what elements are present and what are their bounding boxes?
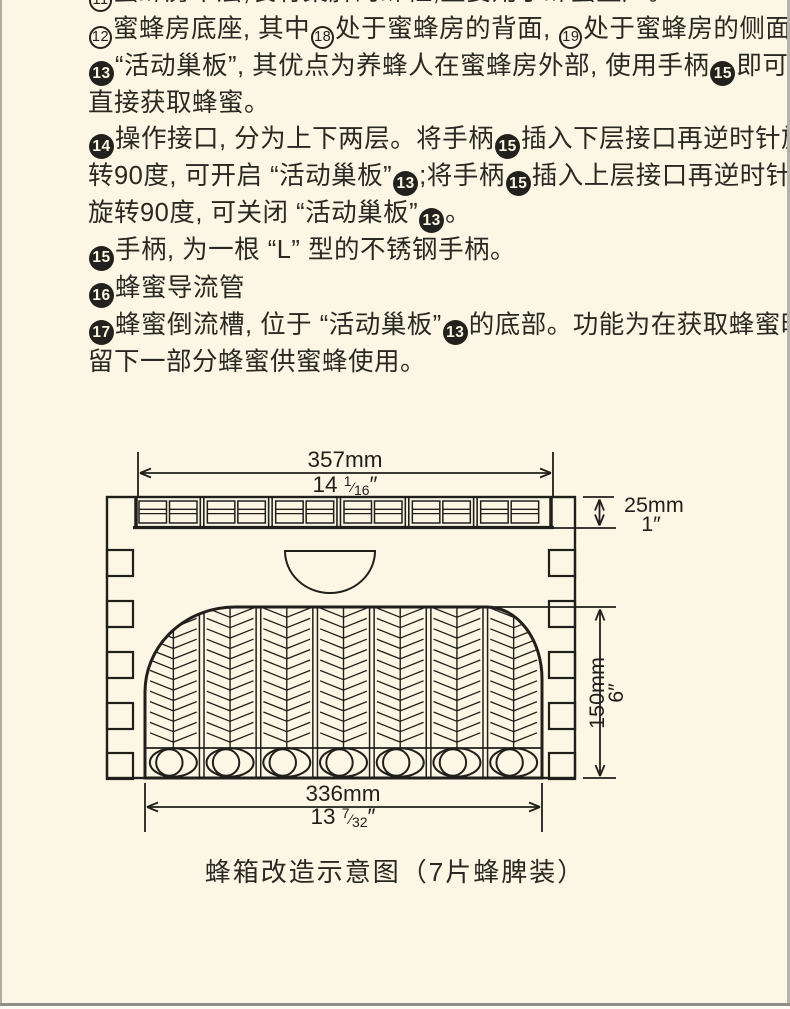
filled-circled-number: 13 <box>393 171 418 196</box>
manual-page: 11蜜蜂房中层,装有巢脾的蜂框,主要用于蜂蜜生产。12蜜蜂房底座, 其中18处于… <box>0 0 790 1009</box>
handle-recess <box>285 551 375 593</box>
body-line: 留下一部分蜂蜜供蜜蜂使用。 <box>88 345 738 381</box>
outlined-circled-number: 12 <box>89 26 112 49</box>
comb-frames-pattern <box>145 604 542 778</box>
filled-circled-number: 13 <box>419 208 444 233</box>
filled-circled-number: 15 <box>710 61 735 86</box>
filled-circled-number: 13 <box>89 61 114 86</box>
body-line: 直接获取蜂蜜。 <box>88 86 738 122</box>
filled-circled-number: 16 <box>89 283 114 308</box>
finger-joint-notches <box>107 550 575 779</box>
body-text: 11蜜蜂房中层,装有巢脾的蜂框,主要用于蜂蜜生产。12蜜蜂房底座, 其中18处于… <box>88 0 738 381</box>
svg-text:13 7⁄32″: 13 7⁄32″ <box>311 804 376 830</box>
page-edge-left <box>0 0 2 1009</box>
svg-text:14 1⁄16″: 14 1⁄16″ <box>313 472 378 498</box>
dimension-336mm: 336mm13 7⁄32″ <box>145 781 542 832</box>
svg-text:1″: 1″ <box>641 512 661 536</box>
body-line: 14操作接口, 分为上下两层。将手柄15插入下层接口再逆时针旋 <box>88 122 738 159</box>
body-line: 11蜜蜂房中层,装有巢脾的蜂框,主要用于蜂蜜生产。 <box>88 0 738 12</box>
dimension-25mm: 25mm1″ <box>554 493 684 536</box>
body-line: 13“活动巢板”, 其优点为养蜂人在蜜蜂房外部, 使用手柄15即可 <box>88 49 738 86</box>
outlined-circled-number: 19 <box>559 26 582 49</box>
dimension-357mm: 357mm14 1⁄16″ <box>138 447 553 498</box>
filled-circled-number: 13 <box>443 320 468 345</box>
body-line: 16蜂蜜导流管 <box>88 271 738 308</box>
body-line: 12蜜蜂房底座, 其中18处于蜜蜂房的背面, 19处于蜜蜂房的侧面。 <box>88 12 738 49</box>
body-line: 17蜂蜜倒流槽, 位于 “活动巢板”13的底部。功能为在获取蜂蜜时, <box>88 308 738 345</box>
top-vent-strip <box>133 497 554 528</box>
filled-circled-number: 15 <box>506 171 531 196</box>
beehive-diagram: 357mm14 1⁄16″25mm1″150mm6″336mm13 7⁄32″ <box>0 440 790 845</box>
diagram-caption: 蜂箱改造示意图（7片蜂脾装） <box>0 852 790 892</box>
body-line: 15手柄, 为一根 “L” 型的不锈钢手柄。 <box>88 233 738 270</box>
filled-circled-number: 15 <box>495 134 520 159</box>
filled-circled-number: 17 <box>89 320 114 345</box>
svg-text:6″: 6″ <box>604 683 628 703</box>
filled-circled-number: 14 <box>89 134 114 159</box>
outlined-circled-number: 18 <box>311 26 334 49</box>
body-line: 转90度, 可开启 “活动巢板”13;将手柄15插入上层接口再逆时针 <box>88 159 738 196</box>
outlined-circled-number: 11 <box>89 0 112 12</box>
body-line: 旋转90度, 可关闭 “活动巢板”13。 <box>88 196 738 233</box>
filled-circled-number: 15 <box>89 246 114 271</box>
svg-text:357mm: 357mm <box>307 447 382 472</box>
svg-text:336mm: 336mm <box>305 781 380 806</box>
